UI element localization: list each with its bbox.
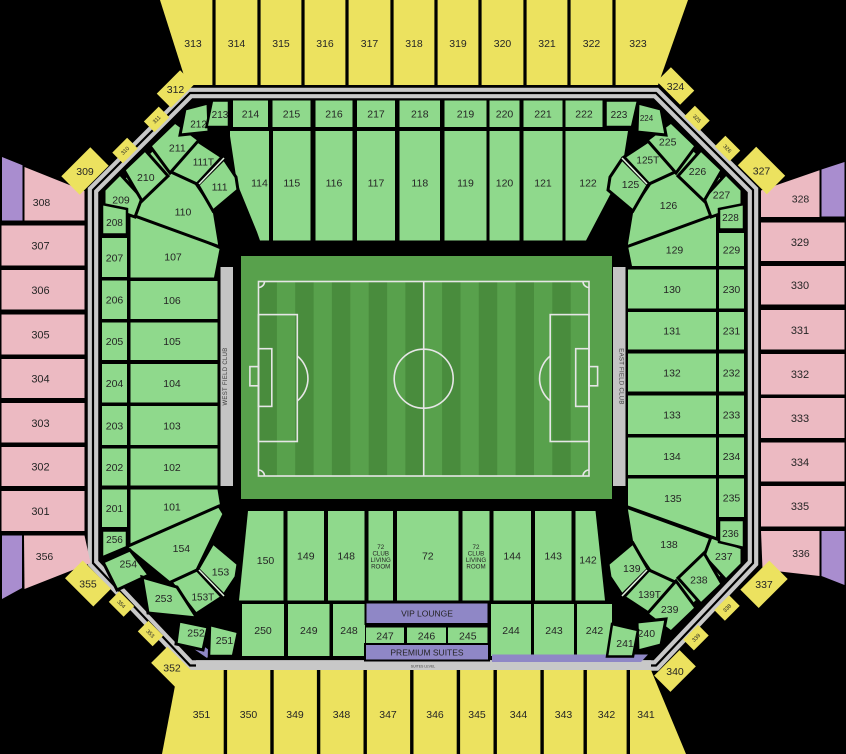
svg-text:346: 346	[426, 709, 444, 721]
svg-text:121: 121	[534, 177, 552, 189]
svg-text:143: 143	[544, 551, 562, 563]
svg-text:349: 349	[286, 709, 304, 721]
svg-text:307: 307	[31, 240, 49, 252]
svg-text:EAST FIELD CLUB: EAST FIELD CLUB	[618, 348, 624, 404]
svg-text:234: 234	[723, 451, 741, 463]
svg-text:333: 333	[791, 413, 809, 425]
svg-text:313: 313	[184, 38, 202, 50]
svg-text:111: 111	[212, 182, 228, 194]
svg-text:340: 340	[666, 666, 684, 678]
svg-text:327: 327	[753, 165, 771, 177]
svg-text:111T: 111T	[193, 158, 214, 169]
svg-text:ROOM: ROOM	[466, 564, 485, 571]
svg-text:351: 351	[193, 709, 211, 721]
svg-text:106: 106	[163, 295, 181, 307]
svg-text:237: 237	[715, 551, 733, 563]
svg-text:328: 328	[792, 193, 810, 205]
svg-text:142: 142	[579, 554, 597, 566]
svg-text:304: 304	[31, 373, 49, 385]
svg-text:132: 132	[663, 367, 681, 379]
svg-text:126: 126	[660, 200, 678, 212]
svg-text:318: 318	[405, 38, 423, 50]
svg-text:211: 211	[169, 143, 186, 155]
svg-text:PREMIUM SUITES: PREMIUM SUITES	[390, 648, 464, 658]
svg-text:120: 120	[496, 177, 514, 189]
svg-text:201: 201	[106, 503, 124, 515]
svg-text:101: 101	[163, 501, 181, 513]
svg-text:154: 154	[173, 543, 191, 555]
svg-text:133: 133	[663, 410, 681, 422]
svg-text:230: 230	[723, 284, 741, 296]
svg-text:202: 202	[106, 462, 124, 474]
svg-text:215: 215	[283, 109, 301, 121]
svg-text:110: 110	[175, 207, 192, 219]
svg-text:153: 153	[212, 567, 230, 579]
svg-text:222: 222	[575, 109, 593, 121]
svg-text:238: 238	[690, 574, 708, 586]
svg-text:VIP LOUNGE: VIP LOUNGE	[401, 609, 453, 619]
svg-text:239: 239	[661, 604, 679, 616]
svg-text:115: 115	[283, 177, 300, 189]
svg-text:254: 254	[120, 558, 138, 570]
svg-text:204: 204	[106, 378, 124, 390]
svg-text:331: 331	[791, 325, 809, 337]
svg-text:212: 212	[190, 120, 207, 131]
svg-text:309: 309	[76, 166, 94, 178]
svg-text:130: 130	[663, 284, 681, 296]
svg-text:322: 322	[583, 38, 601, 50]
svg-text:336: 336	[792, 548, 810, 560]
svg-text:252: 252	[187, 627, 205, 639]
svg-text:246: 246	[418, 630, 436, 642]
svg-text:320: 320	[494, 38, 512, 50]
svg-text:232: 232	[723, 367, 741, 379]
svg-text:253: 253	[155, 593, 173, 605]
svg-text:208: 208	[106, 218, 123, 229]
svg-text:303: 303	[31, 418, 49, 430]
svg-text:249: 249	[300, 625, 318, 637]
svg-text:139: 139	[623, 563, 641, 575]
svg-text:102: 102	[163, 462, 181, 474]
svg-text:245: 245	[459, 630, 477, 642]
svg-text:256: 256	[106, 535, 123, 546]
svg-text:221: 221	[534, 109, 552, 121]
svg-text:ROOM: ROOM	[371, 564, 390, 571]
svg-text:139T: 139T	[638, 590, 661, 601]
svg-text:117: 117	[368, 177, 385, 189]
svg-text:306: 306	[31, 285, 49, 297]
svg-text:103: 103	[163, 420, 181, 432]
svg-text:231: 231	[723, 326, 741, 338]
svg-text:225: 225	[659, 137, 677, 149]
svg-text:SUITES LEVEL: SUITES LEVEL	[411, 665, 436, 669]
svg-text:131: 131	[663, 326, 681, 338]
svg-text:148: 148	[337, 551, 355, 563]
svg-text:337: 337	[755, 579, 773, 591]
svg-text:341: 341	[637, 709, 655, 721]
svg-text:308: 308	[33, 197, 51, 209]
svg-text:344: 344	[510, 709, 528, 721]
svg-text:355: 355	[79, 578, 97, 590]
svg-text:229: 229	[723, 244, 741, 256]
svg-text:210: 210	[137, 172, 155, 184]
svg-text:243: 243	[545, 625, 563, 637]
svg-text:105: 105	[163, 336, 181, 348]
svg-text:240: 240	[638, 628, 656, 640]
svg-text:104: 104	[163, 378, 181, 390]
svg-text:343: 343	[555, 709, 573, 721]
svg-text:119: 119	[457, 177, 474, 189]
svg-text:312: 312	[167, 84, 185, 96]
svg-text:242: 242	[586, 625, 604, 637]
svg-text:218: 218	[411, 109, 429, 121]
svg-text:329: 329	[791, 237, 809, 249]
svg-text:107: 107	[164, 251, 182, 263]
svg-text:236: 236	[722, 529, 739, 540]
svg-text:334: 334	[791, 457, 809, 469]
svg-text:356: 356	[36, 551, 54, 563]
svg-text:250: 250	[254, 625, 272, 637]
svg-text:352: 352	[163, 662, 181, 674]
svg-text:233: 233	[723, 410, 741, 422]
svg-text:247: 247	[376, 630, 394, 642]
svg-text:330: 330	[791, 280, 809, 292]
svg-text:223: 223	[611, 110, 628, 121]
svg-text:319: 319	[449, 38, 467, 50]
svg-text:150: 150	[257, 555, 275, 567]
svg-text:248: 248	[340, 625, 358, 637]
svg-text:342: 342	[598, 709, 616, 721]
svg-text:244: 244	[502, 625, 520, 637]
svg-text:305: 305	[31, 329, 49, 341]
svg-text:206: 206	[106, 295, 124, 307]
svg-text:125T: 125T	[636, 156, 659, 167]
svg-text:302: 302	[31, 461, 49, 473]
svg-text:317: 317	[361, 38, 379, 50]
svg-text:314: 314	[228, 38, 246, 50]
svg-text:235: 235	[723, 493, 741, 505]
svg-text:228: 228	[722, 213, 739, 224]
svg-text:214: 214	[242, 109, 260, 121]
svg-text:203: 203	[106, 420, 124, 432]
svg-text:144: 144	[503, 551, 521, 563]
svg-text:149: 149	[297, 551, 315, 563]
svg-text:217: 217	[367, 109, 385, 121]
svg-text:116: 116	[326, 177, 343, 189]
svg-text:335: 335	[791, 501, 809, 513]
svg-text:129: 129	[666, 244, 684, 256]
svg-text:134: 134	[663, 451, 681, 463]
svg-text:224: 224	[640, 114, 654, 123]
svg-text:114: 114	[251, 177, 268, 189]
svg-text:324: 324	[667, 81, 685, 93]
svg-text:122: 122	[579, 177, 597, 189]
svg-text:226: 226	[689, 166, 707, 178]
svg-text:345: 345	[468, 709, 486, 721]
svg-text:135: 135	[664, 493, 682, 505]
svg-text:251: 251	[216, 635, 234, 647]
svg-text:227: 227	[713, 190, 731, 202]
svg-text:WEST FIELD CLUB: WEST FIELD CLUB	[223, 347, 229, 405]
svg-text:213: 213	[212, 110, 229, 121]
svg-text:125: 125	[622, 179, 640, 191]
svg-text:315: 315	[272, 38, 290, 50]
svg-text:350: 350	[240, 709, 258, 721]
svg-text:348: 348	[333, 709, 351, 721]
svg-text:301: 301	[31, 506, 49, 518]
svg-text:205: 205	[106, 336, 124, 348]
svg-text:347: 347	[379, 709, 397, 721]
svg-text:216: 216	[325, 109, 343, 121]
svg-text:138: 138	[660, 539, 678, 551]
svg-text:207: 207	[106, 252, 124, 264]
svg-text:316: 316	[316, 38, 334, 50]
svg-text:220: 220	[496, 109, 514, 121]
svg-text:323: 323	[629, 38, 647, 50]
svg-text:321: 321	[538, 38, 556, 50]
svg-text:241: 241	[616, 638, 634, 650]
svg-text:153T: 153T	[192, 593, 215, 604]
svg-text:219: 219	[457, 109, 475, 121]
svg-text:332: 332	[791, 369, 809, 381]
svg-text:118: 118	[411, 177, 428, 189]
svg-text:209: 209	[112, 194, 130, 206]
svg-text:72: 72	[422, 551, 434, 563]
